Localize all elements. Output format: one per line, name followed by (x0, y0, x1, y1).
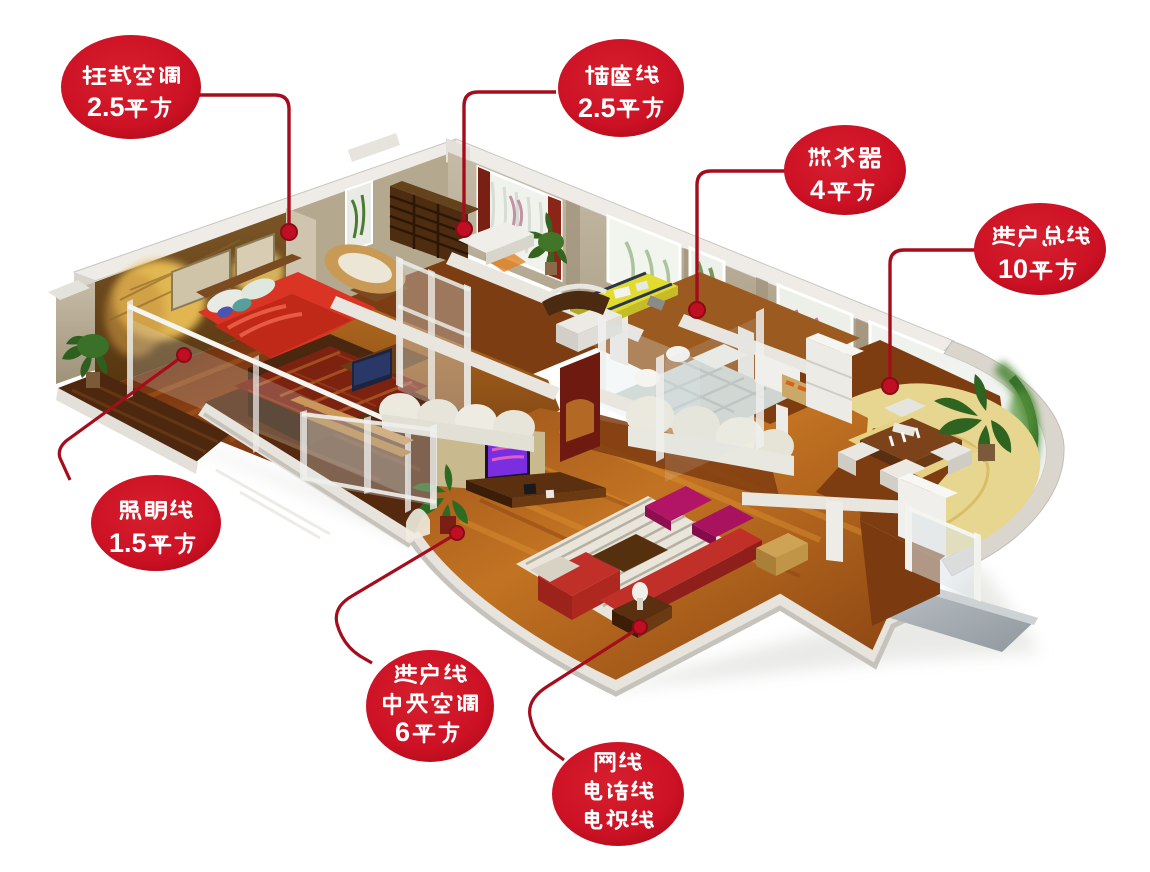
svg-text:2.5: 2.5 (578, 93, 616, 123)
svg-text:6: 6 (395, 717, 410, 747)
svg-text:10: 10 (998, 254, 1028, 284)
svg-text:4: 4 (810, 175, 825, 205)
svg-text:1.5: 1.5 (109, 528, 147, 558)
svg-text:2.5: 2.5 (87, 92, 125, 122)
